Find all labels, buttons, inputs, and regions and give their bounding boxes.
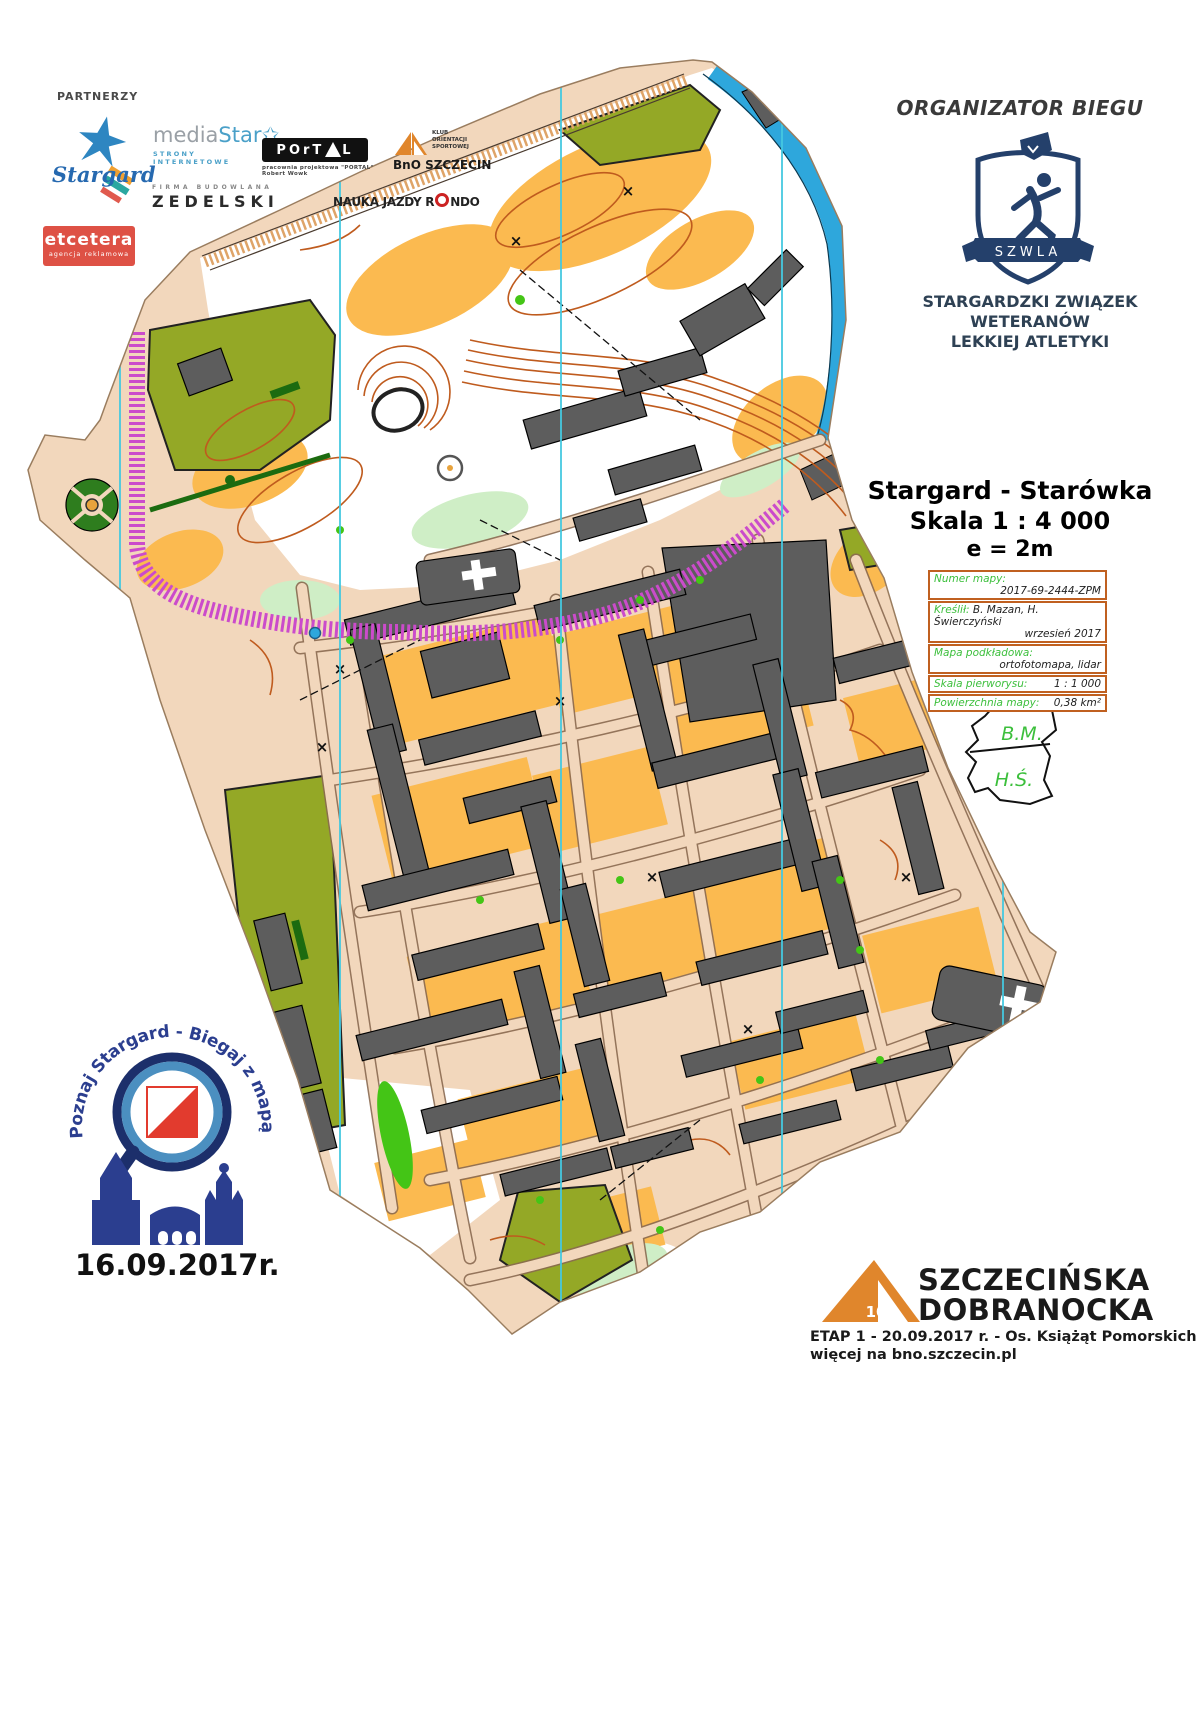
bno-triangle-icon bbox=[393, 128, 429, 156]
mediastar-logo: mediaStar✩ STRONY INTERNETOWE bbox=[153, 125, 263, 166]
zedelski-name: ZEDELSKI bbox=[152, 192, 302, 211]
map-title-line1: Stargard - Starówka bbox=[860, 476, 1160, 505]
etcetera-subtitle: agencja reklamowa bbox=[43, 250, 135, 258]
rondo-logo: NAUKA JAZDY RNDO bbox=[333, 193, 480, 209]
organizer-heading: ORGANIZATOR BIEGU bbox=[880, 96, 1160, 120]
signature-area: B.M. H.Ś. bbox=[966, 698, 1056, 804]
portal-triangle-icon bbox=[325, 142, 341, 157]
etcetera-name: etcetera bbox=[43, 226, 135, 250]
info-row-skala-pierworysu: Skala pierworysu: 1 : 1 000 bbox=[928, 675, 1107, 693]
etcetera-logo: etcetera agencja reklamowa bbox=[43, 226, 135, 266]
zedelski-subtitle: FIRMA BUDOWLANA bbox=[152, 184, 302, 191]
dobranocka-title-line1: SZCZECIŃSKA bbox=[918, 1266, 1154, 1296]
info-value: 0,38 km² bbox=[1054, 697, 1101, 709]
signature-bottom: H.Ś. bbox=[995, 767, 1033, 791]
organizer-name-line3: LEKKIEJ ATLETYKI bbox=[890, 332, 1170, 352]
svg-text:×: × bbox=[900, 868, 913, 886]
info-row-powierzchnia: Powierzchnia mapy: 0,38 km² bbox=[928, 694, 1107, 712]
svg-text:×: × bbox=[742, 1020, 755, 1038]
dobranocka-details: ETAP 1 - 20.09.2017 r. - Os. Książąt Pom… bbox=[810, 1328, 1197, 1364]
info-row-numer-mapy: Numer mapy: 2017-69-2444-ZPM bbox=[928, 570, 1107, 600]
orienteering-flag-icon bbox=[147, 1087, 197, 1137]
portal-text-left: POrT bbox=[276, 143, 324, 158]
svg-text:×: × bbox=[510, 232, 523, 250]
info-value: 2017-69-2444-ZPM bbox=[934, 585, 1101, 597]
mediastar-text-gray: media bbox=[153, 123, 218, 147]
info-label: Powierzchnia mapy: bbox=[934, 697, 1039, 709]
portal-logo: POrT L pracownia projektowa "PORTAL" Rob… bbox=[262, 138, 382, 177]
info-label: Skala pierworysu: bbox=[934, 678, 1027, 690]
rondo-text-pre: NAUKA JAZDY R bbox=[333, 195, 434, 209]
pond bbox=[310, 628, 321, 639]
event-date: 16.09.2017r. bbox=[75, 1248, 265, 1282]
organizer-name-line1: STARGARDZKI ZWIĄZEK bbox=[890, 292, 1170, 312]
info-row-mapa-podkladowa: Mapa podkładowa: ortofotomapa, lidar bbox=[928, 644, 1107, 674]
szwla-badge-text: SZWLA bbox=[995, 245, 1061, 260]
info-value: 1 : 1 000 bbox=[1054, 678, 1101, 690]
zedelski-logo: FIRMA BUDOWLANA ZEDELSKI bbox=[152, 184, 302, 211]
bno-logo: KLUB ORIENTACJI SPORTOWEJ BnO SZCZECIN bbox=[393, 128, 503, 172]
partners-heading: PARTNERZY bbox=[57, 90, 138, 103]
bno-line1: KLUB bbox=[432, 130, 469, 137]
bno-line3: SPORTOWEJ bbox=[432, 144, 469, 151]
mediastar-subtitle: STRONY INTERNETOWE bbox=[153, 150, 263, 166]
organizer-name: STARGARDZKI ZWIĄZEK WETERANÓW LEKKIEJ AT… bbox=[890, 292, 1170, 352]
info-value2: wrzesień 2017 bbox=[934, 628, 1101, 640]
svg-text:×: × bbox=[646, 868, 659, 886]
dobranocka-details-line1: ETAP 1 - 20.09.2017 r. - Os. Książąt Pom… bbox=[810, 1328, 1197, 1346]
map-info-table: Numer mapy: 2017-69-2444-ZPM Kreślił: B.… bbox=[928, 570, 1107, 713]
info-row-kreslil: Kreślił: B. Mazan, H. Świerczyński wrzes… bbox=[928, 601, 1107, 643]
mediastar-text-blue: Star bbox=[218, 123, 261, 147]
dobranocka-number: 10 bbox=[866, 1303, 887, 1321]
map-title-line3: e = 2m bbox=[860, 537, 1160, 562]
dobranocka-title-line2: DOBRANOCKA bbox=[918, 1296, 1154, 1326]
bno-line2: ORIENTACJI bbox=[432, 137, 469, 144]
rondo-ring-icon bbox=[435, 193, 449, 207]
stargard-logo: Stargard bbox=[50, 110, 145, 205]
svg-text:×: × bbox=[316, 738, 329, 756]
bno-name: BnO SZCZECIN bbox=[393, 158, 503, 172]
map-title: Stargard - Starówka Skala 1 : 4 000 e = … bbox=[860, 476, 1160, 562]
rondo-text-post: NDO bbox=[450, 195, 479, 209]
dobranocka-logo-icon: 10 bbox=[818, 1256, 923, 1326]
dobranocka-title: SZCZECIŃSKA DOBRANOCKA bbox=[918, 1266, 1154, 1325]
svg-text:×: × bbox=[554, 692, 567, 710]
signature-top: B.M. bbox=[1001, 723, 1043, 745]
info-label: Numer mapy: bbox=[934, 573, 1101, 585]
portal-text-right: L bbox=[342, 143, 353, 158]
roundabout bbox=[66, 479, 118, 531]
szwla-shield-icon: SZWLA bbox=[940, 128, 1130, 293]
poznaj-stargard-logo: Poznaj Stargard - Biegaj z mapą bbox=[40, 1010, 320, 1260]
svg-text:×: × bbox=[622, 182, 635, 200]
organizer-name-line2: WETERANÓW bbox=[890, 312, 1170, 332]
info-label: Kreślił: bbox=[934, 604, 970, 616]
stargard-star-icon bbox=[50, 110, 145, 205]
portal-subtitle: pracownia projektowa "PORTAL" Robert Wow… bbox=[262, 165, 382, 177]
info-value: ortofotomapa, lidar bbox=[934, 659, 1101, 671]
map-title-line2: Skala 1 : 4 000 bbox=[860, 507, 1160, 535]
info-label: Mapa podkładowa: bbox=[934, 647, 1101, 659]
dobranocka-details-line2: więcej na bno.szczecin.pl bbox=[810, 1346, 1197, 1364]
stargard-logo-text: Stargard bbox=[52, 162, 156, 187]
